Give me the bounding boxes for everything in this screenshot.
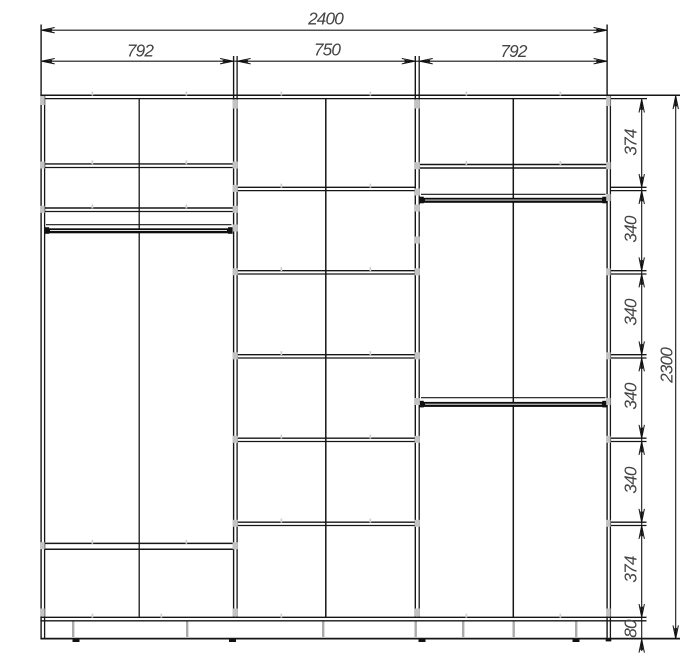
svg-text:340: 340 <box>621 466 641 493</box>
svg-text:340: 340 <box>621 215 641 242</box>
svg-text:374: 374 <box>621 129 641 155</box>
svg-text:2300: 2300 <box>656 347 676 384</box>
svg-text:80: 80 <box>620 619 640 638</box>
svg-text:792: 792 <box>500 41 527 61</box>
svg-text:340: 340 <box>621 298 641 325</box>
svg-text:340: 340 <box>621 382 641 409</box>
svg-text:792: 792 <box>127 41 154 61</box>
svg-text:2400: 2400 <box>307 9 344 29</box>
svg-text:374: 374 <box>621 556 641 582</box>
svg-text:750: 750 <box>314 40 341 60</box>
